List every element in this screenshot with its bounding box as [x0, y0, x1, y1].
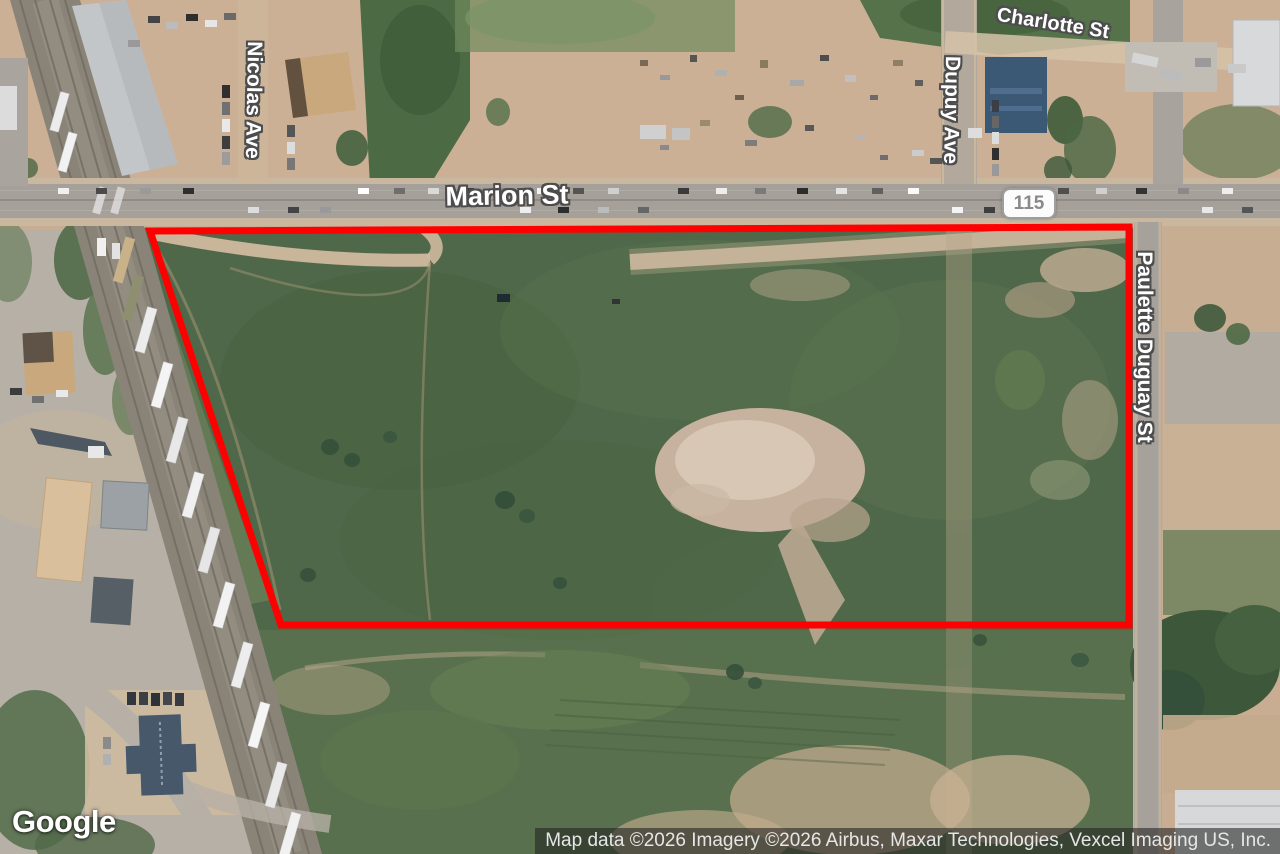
route-shield-number: 115	[1014, 193, 1045, 215]
street-label-nicolas-ave: Nicolas Ave	[240, 41, 266, 159]
satellite-imagery[interactable]	[0, 0, 1280, 854]
attribution-bar: Map data ©2026 Imagery ©2026 Airbus, Max…	[535, 828, 1280, 854]
street-label-paulette-duguay-st: Paulette Duguay St	[1132, 251, 1156, 442]
google-logo[interactable]: Google	[12, 804, 116, 840]
street-label-marion-st: Marion St	[445, 179, 569, 212]
street-label-dupuy-ave: Dupuy Ave	[938, 56, 964, 165]
attribution-text: Map data ©2026 Imagery ©2026 Airbus, Max…	[545, 830, 1271, 851]
route-shield-115: 115	[1002, 188, 1056, 219]
map-viewport[interactable]: Charlotte St Nicolas Ave Marion St Dupuy…	[0, 0, 1280, 854]
